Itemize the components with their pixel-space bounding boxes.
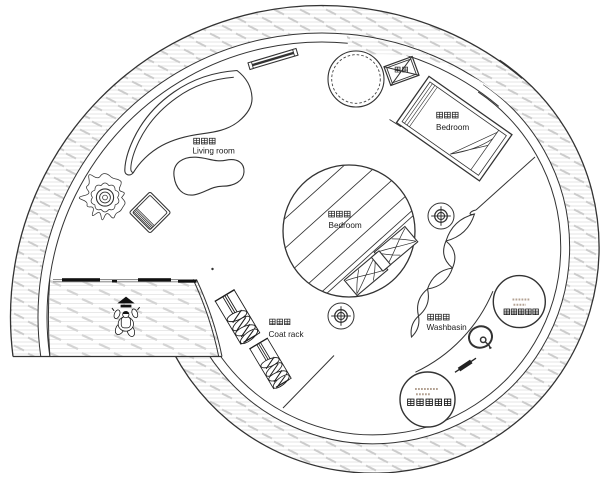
svg-text:Coat rack: Coat rack bbox=[269, 330, 305, 339]
svg-text:Living room: Living room bbox=[193, 147, 236, 156]
svg-text:Washbasin: Washbasin bbox=[427, 323, 468, 332]
svg-text:Bedroom: Bedroom bbox=[436, 123, 469, 132]
svg-text:Bedroom: Bedroom bbox=[329, 221, 362, 230]
